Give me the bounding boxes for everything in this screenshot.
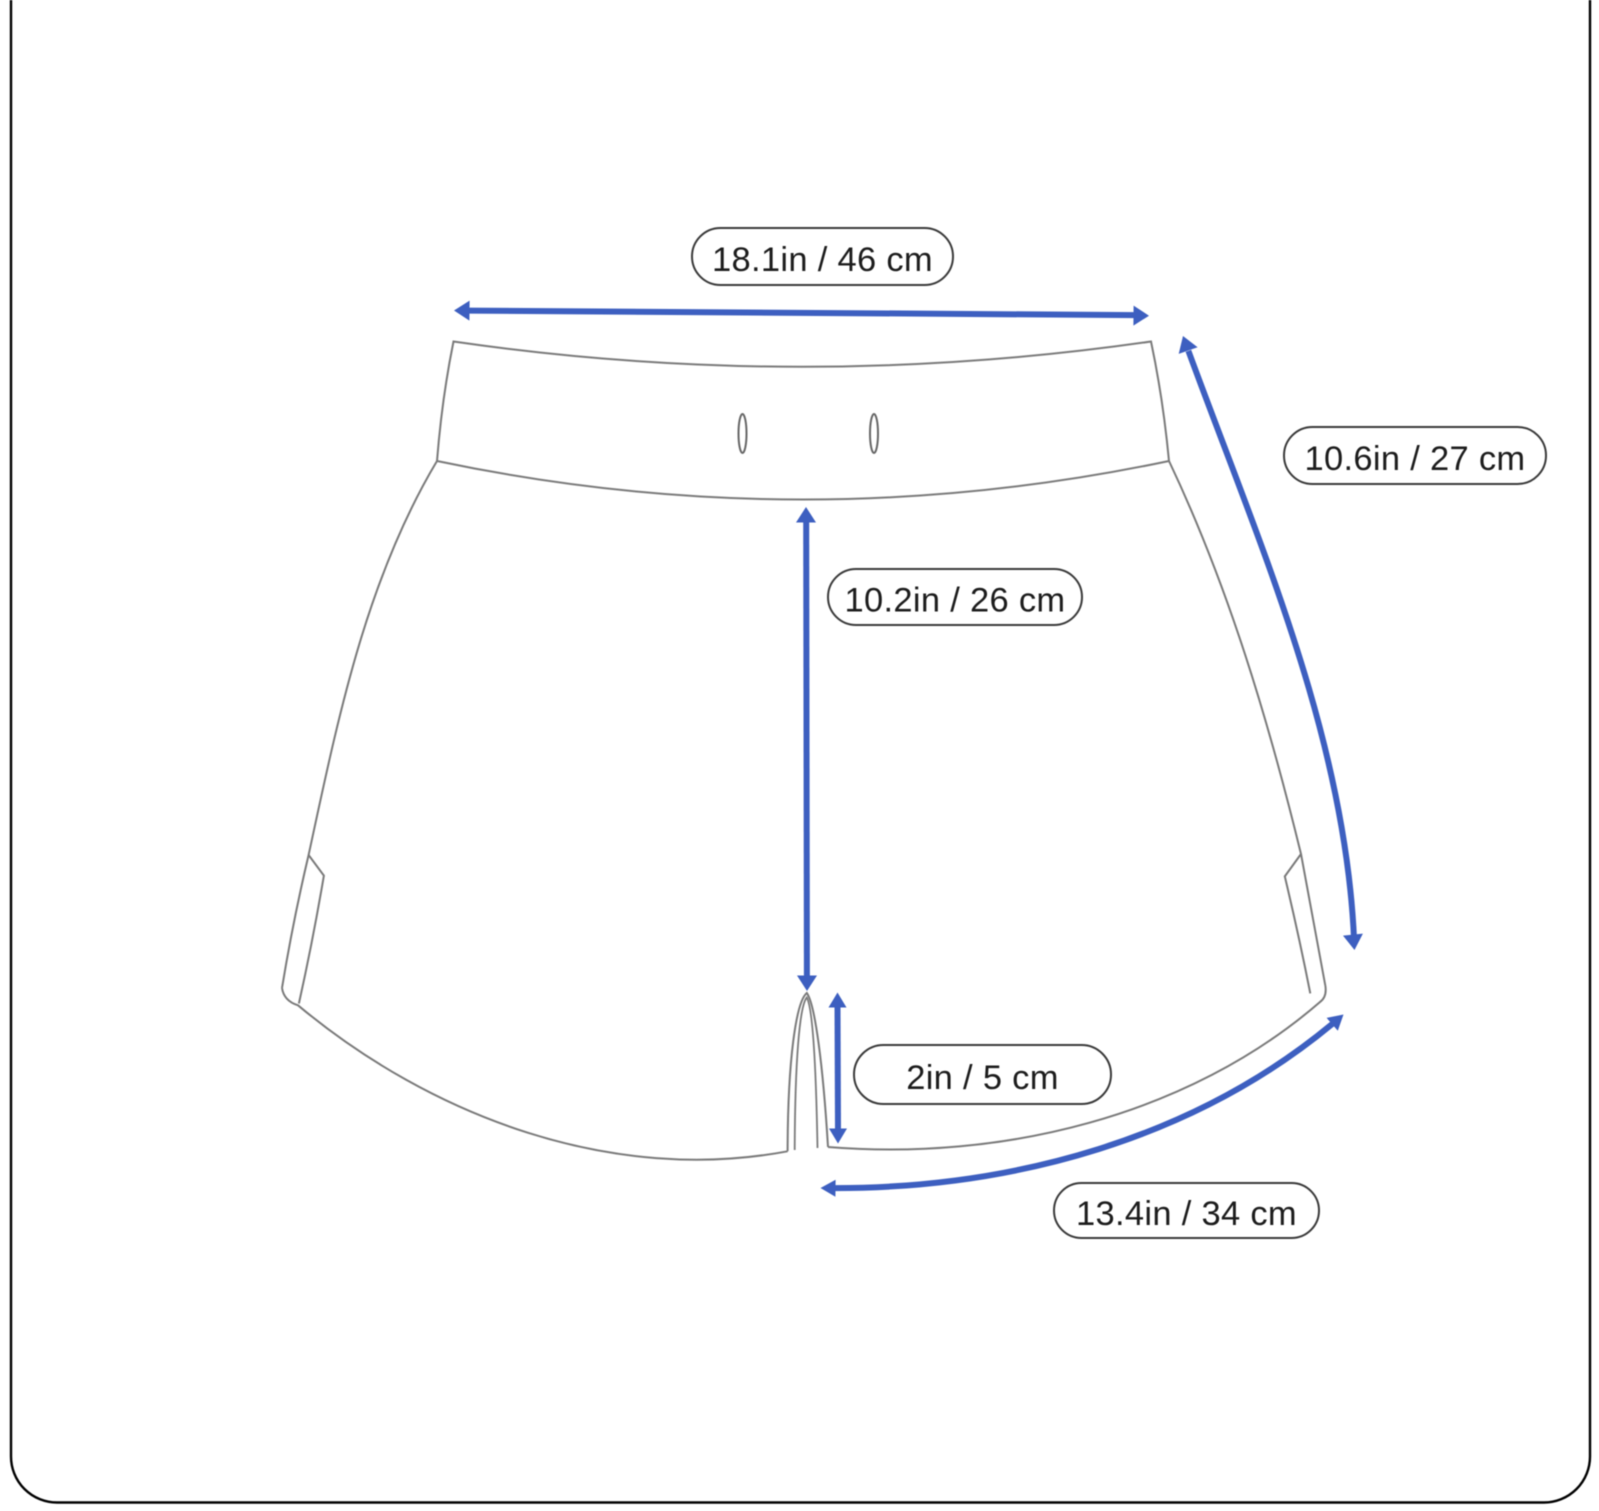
svg-text:13.4in / 34 cm: 13.4in / 34 cm [1076, 1195, 1297, 1233]
svg-text:2in / 5 cm: 2in / 5 cm [906, 1059, 1059, 1097]
svg-text:18.1in / 46 cm: 18.1in / 46 cm [712, 241, 933, 279]
svg-text:10.6in / 27 cm: 10.6in / 27 cm [1305, 440, 1526, 478]
svg-text:10.2in / 26 cm: 10.2in / 26 cm [845, 582, 1066, 620]
